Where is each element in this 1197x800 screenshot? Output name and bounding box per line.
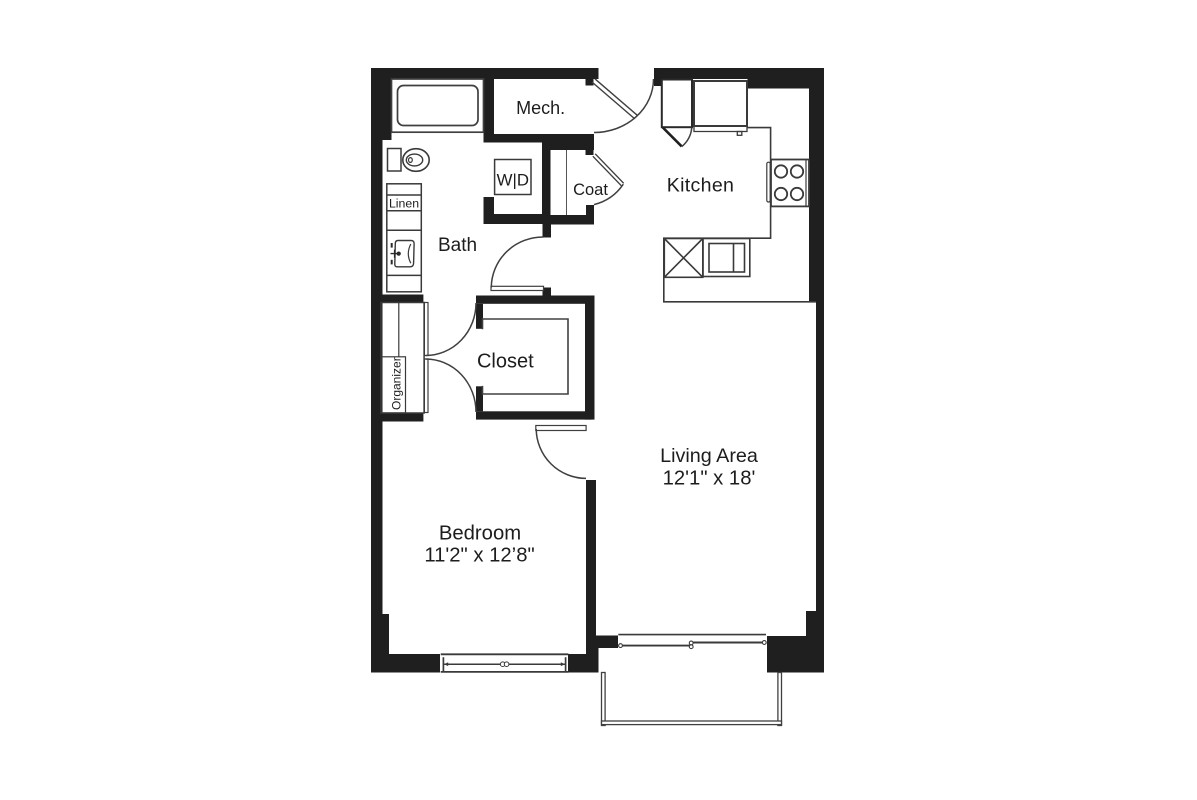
svg-text:Coat: Coat (573, 181, 608, 199)
svg-text:W|D: W|D (497, 170, 529, 189)
svg-text:12'1" x 18': 12'1" x 18' (663, 468, 756, 490)
svg-text:Living Area: Living Area (660, 445, 758, 467)
svg-text:Bedroom: Bedroom (439, 522, 521, 544)
svg-text:Linen: Linen (389, 197, 419, 211)
svg-text:Bath: Bath (438, 235, 477, 256)
svg-text:Mech.: Mech. (516, 98, 565, 118)
svg-text:Organizer: Organizer (390, 357, 404, 410)
svg-text:Kitchen: Kitchen (667, 175, 734, 197)
svg-text:11'2" x 12’8": 11'2" x 12’8" (424, 545, 534, 567)
svg-text:Closet: Closet (477, 350, 534, 372)
